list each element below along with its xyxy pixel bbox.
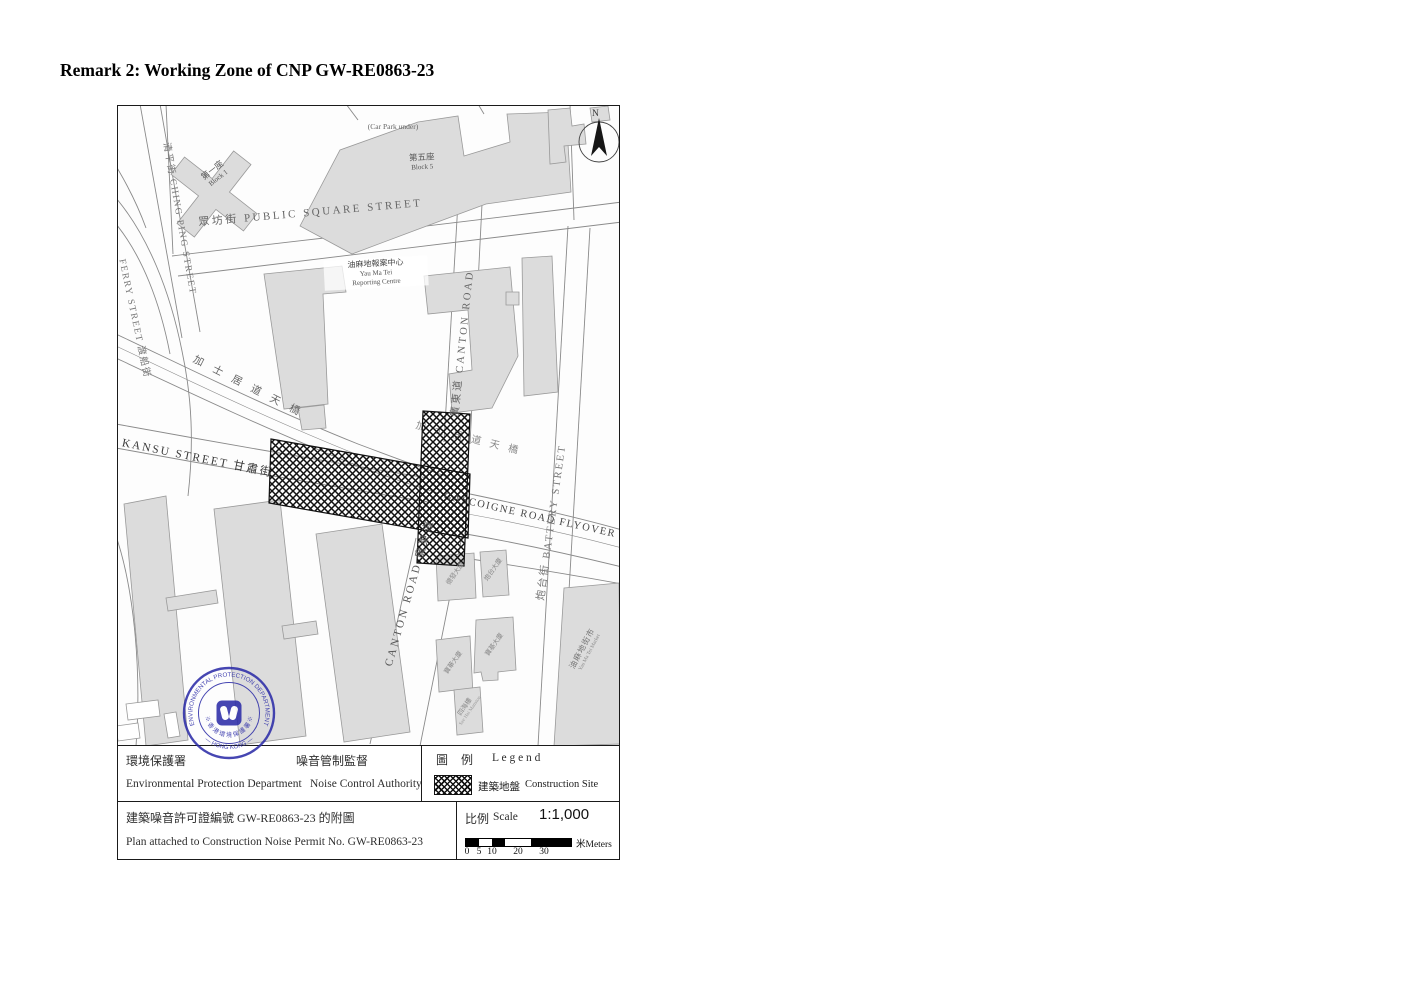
epd-stamp: ENVIRONMENTAL PROTECTION DEPARTMENT — HO…: [181, 665, 277, 761]
legend-item-zh: 建築地盤: [478, 779, 520, 794]
construction-site-swatch: [434, 775, 472, 795]
panel-row-permit: 建築噪音許可證編號 GW-RE0863-23 的附圖 Plan attached…: [118, 802, 619, 859]
map-canvas: N (Car Park under) 第一座 Block 1 第五座 Block…: [118, 106, 619, 746]
building-east-of-canton: [522, 256, 558, 396]
permit-zh: 建築噪音許可證編號 GW-RE0863-23 的附圖: [126, 809, 355, 826]
label-car-park: (Car Park under): [328, 122, 458, 131]
document-page: Remark 2: Working Zone of CNP GW-RE0863-…: [0, 0, 1403, 992]
epd-logo: [217, 701, 242, 726]
scale-label-en: Scale: [493, 811, 518, 823]
legend-cell: 圖 例 L e g e n d 建築地盤 Construction Site: [421, 746, 619, 801]
legend-title-zh: 圖 例: [436, 751, 478, 768]
label-reporting-centre: 油麻地報案中心 Yau Ma Tei Reporting Centre: [323, 255, 428, 290]
page-title: Remark 2: Working Zone of CNP GW-RE0863-…: [60, 60, 434, 81]
scale-value: 1:1,000: [539, 806, 589, 823]
nca-zh: 噪音管制監督: [296, 752, 368, 769]
legend-item-en: Construction Site: [525, 779, 598, 790]
nca-en: Noise Control Authority: [310, 778, 422, 790]
dept-en: Environmental Protection Department: [126, 778, 302, 790]
scale-label-zh: 比例: [465, 810, 489, 827]
north-label: N: [592, 109, 599, 121]
dept-zh: 環境保護署: [126, 752, 186, 769]
legend-title-en: L e g e n d: [492, 752, 540, 764]
scale-ticks: 0 5 10 20 30: [465, 847, 585, 859]
permit-en: Plan attached to Construction Noise Perm…: [126, 836, 423, 848]
scale-cell: 比例 Scale 1:1,000 米Meters 0 5 10 20 30: [456, 802, 619, 859]
